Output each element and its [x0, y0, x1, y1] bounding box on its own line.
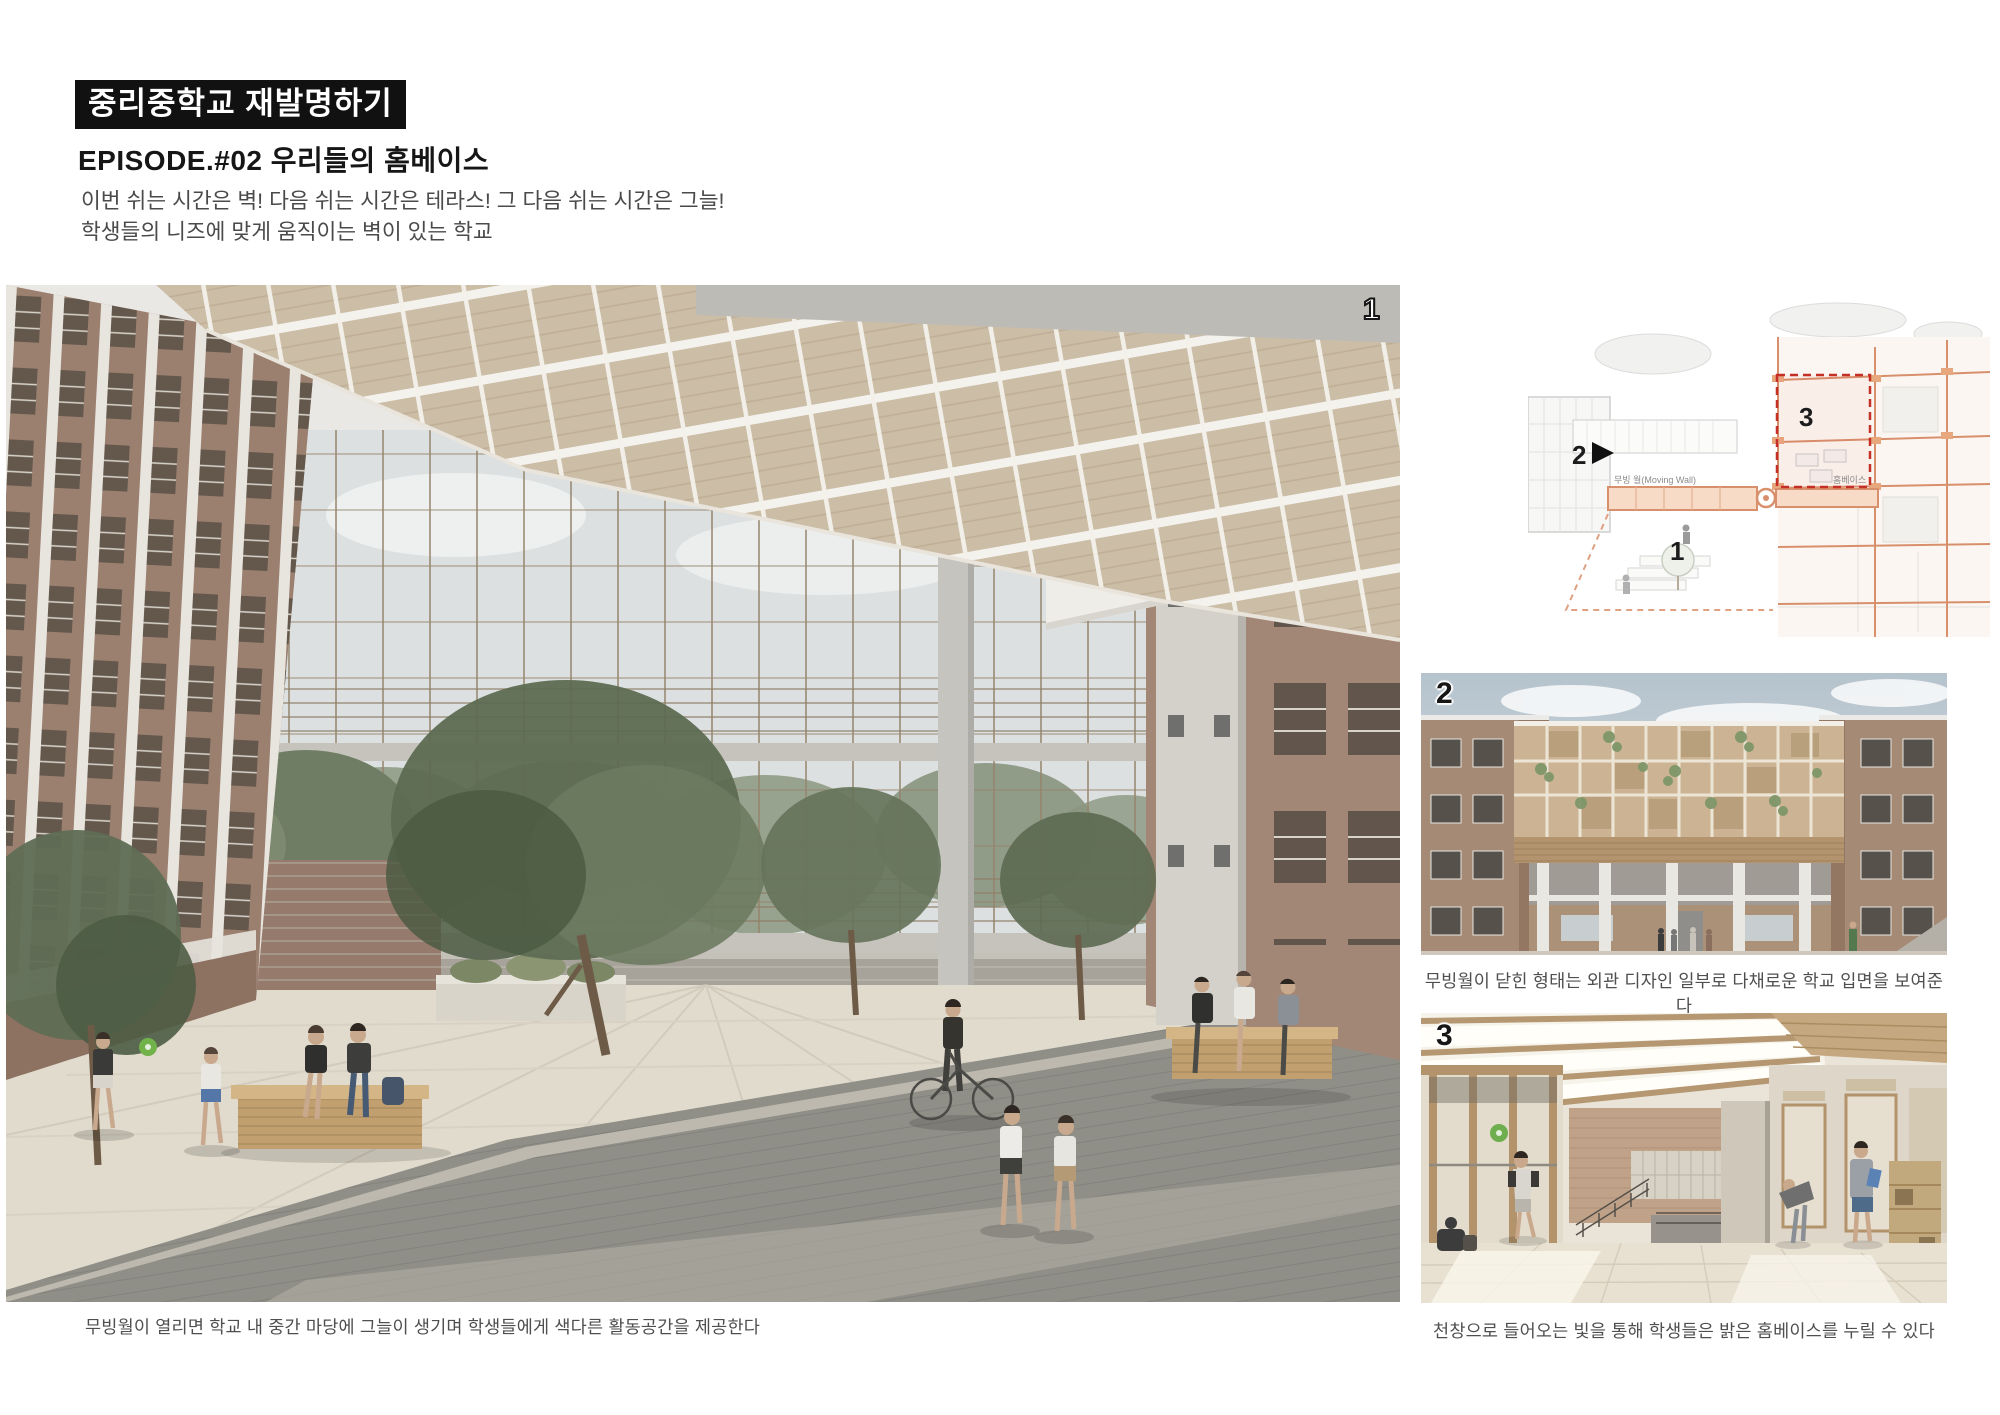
- interior-illustration: [1421, 1013, 1947, 1303]
- diagram-label-3: 3: [1799, 402, 1813, 432]
- caption-facade-render: 무빙월이 닫힌 형태는 외관 디자인 일부로 다채로운 학교 입면을 보여준다: [1421, 968, 1947, 1018]
- diagram-illustration: 2 3 1 무빙 월(Moving Wall) 홈베이스: [1528, 292, 1990, 642]
- backpack: [382, 1077, 404, 1105]
- facade-illustration: [1421, 673, 1947, 955]
- courtyard-illustration: [6, 285, 1400, 1302]
- description-line-2: 학생들의 니즈에 맞게 움직이는 벽이 있는 학교: [81, 218, 724, 247]
- episode-subtitle: EPISODE.#02 우리들의 홈베이스: [78, 139, 724, 179]
- main-courtyard-render: 1: [6, 285, 1400, 1302]
- moving-wall-block: [1514, 721, 1844, 863]
- facade-render: 2: [1421, 673, 1947, 955]
- homebase-highlight-box: [1777, 375, 1870, 487]
- caption-interior-render: 천창으로 들어오는 빛을 통해 학생들은 밝은 홈베이스를 누릴 수 있다: [1421, 1318, 1947, 1343]
- annotation-homebase: 홈베이스: [1833, 474, 1866, 485]
- left-colonnade: [1421, 1065, 1563, 1246]
- figure-number-2: 2: [1436, 679, 1453, 709]
- moving-wall-beam: [1608, 487, 1878, 510]
- figure-number-3: 3: [1436, 1021, 1453, 1051]
- annotation-moving-wall: 무빙 월(Moving Wall): [1614, 474, 1696, 485]
- axon-section-diagram: 2 3 1 무빙 월(Moving Wall) 홈베이스: [1528, 292, 1990, 642]
- diagram-label-2: 2: [1572, 440, 1586, 470]
- description-line-1: 이번 쉬는 시간은 벽! 다음 쉬는 시간은 테라스! 그 다음 쉬는 시간은 …: [81, 187, 724, 216]
- figure-number-1: 1: [1363, 295, 1380, 325]
- diagram-label-1: 1: [1670, 536, 1684, 566]
- interior-render: 3: [1421, 1013, 1947, 1303]
- wood-slat-band: [1514, 837, 1844, 863]
- presentation-board: { "header": { "title": "중리중학교 재발명하기", "s…: [0, 0, 2000, 1415]
- caption-main-render: 무빙월이 열리면 학교 내 중간 마당에 그늘이 생기며 학생들에게 색다른 활…: [85, 1314, 1065, 1339]
- interior-floor: [1421, 1243, 1947, 1303]
- page-title: 중리중학교 재발명하기: [75, 80, 406, 129]
- header: 중리중학교 재발명하기 EPISODE.#02 우리들의 홈베이스 이번 쉬는 …: [75, 80, 724, 247]
- bench-left: [221, 1085, 451, 1163]
- ground-floor-zone: [1529, 863, 1831, 955]
